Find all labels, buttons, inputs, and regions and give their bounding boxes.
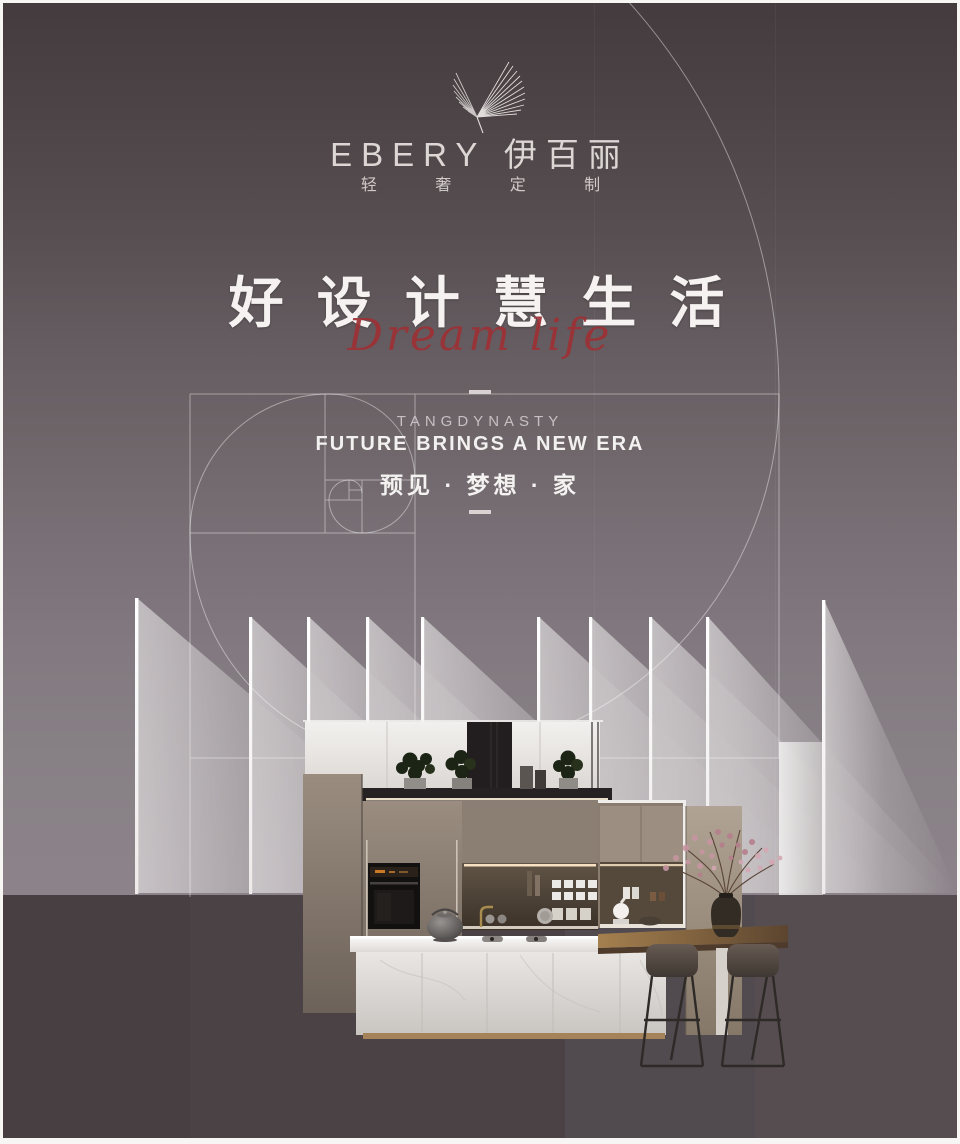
island-toe-kick [363,1033,665,1039]
light-slab [779,742,823,895]
cabinet-top-edge [303,720,603,722]
spice-jar [659,892,665,901]
poster: EBERY 伊百丽 轻 奢 定 制 好 设 计 慧 生 活 Dream life… [0,0,960,1144]
metal-cup [486,915,495,924]
brand-tagline: 轻 奢 定 制 [361,171,627,195]
stool-legs [641,976,703,1066]
framed-cabinet-box [598,800,686,928]
switch-panel [632,887,639,899]
metal-cup [498,915,507,924]
hero-script-text: Dream life [348,310,613,361]
light-bar [822,600,825,894]
section-slogan: 预见 · 梦想 · 家 [380,466,580,500]
stool-seat [646,944,698,977]
niche-led-strip [464,864,596,867]
divider-dash-top [469,390,491,394]
hood-led-strip [366,798,608,801]
jar-row [552,908,591,920]
canister [520,766,533,789]
canister [535,770,546,789]
back-wall [462,801,598,863]
spice-jar [650,892,656,901]
light-fan [824,600,958,893]
light-bar [135,598,138,894]
stool-seat [727,944,779,977]
plant-pot [559,778,578,789]
bottle [527,871,532,896]
bottle [535,875,540,896]
wing-feather-icon [453,62,525,133]
upper-dark-panel [467,722,512,790]
niche-counter-edge [462,926,598,929]
tall-cabinet-left [303,774,362,1013]
blossom-vase [711,893,741,937]
built-in-oven [368,863,420,929]
stool-legs [722,976,784,1066]
fruit-bowl [639,917,661,926]
section-eyebrow: TANGDYNASTY [397,413,563,430]
divider-dash-bottom [469,510,491,514]
plant-pot [452,778,472,789]
brand-logo-text: EBERY 伊百丽 [330,128,630,176]
light-bar [249,617,252,894]
plant-pot [404,778,426,789]
section-headline: FUTURE BRINGS A NEW ERA [316,433,645,456]
